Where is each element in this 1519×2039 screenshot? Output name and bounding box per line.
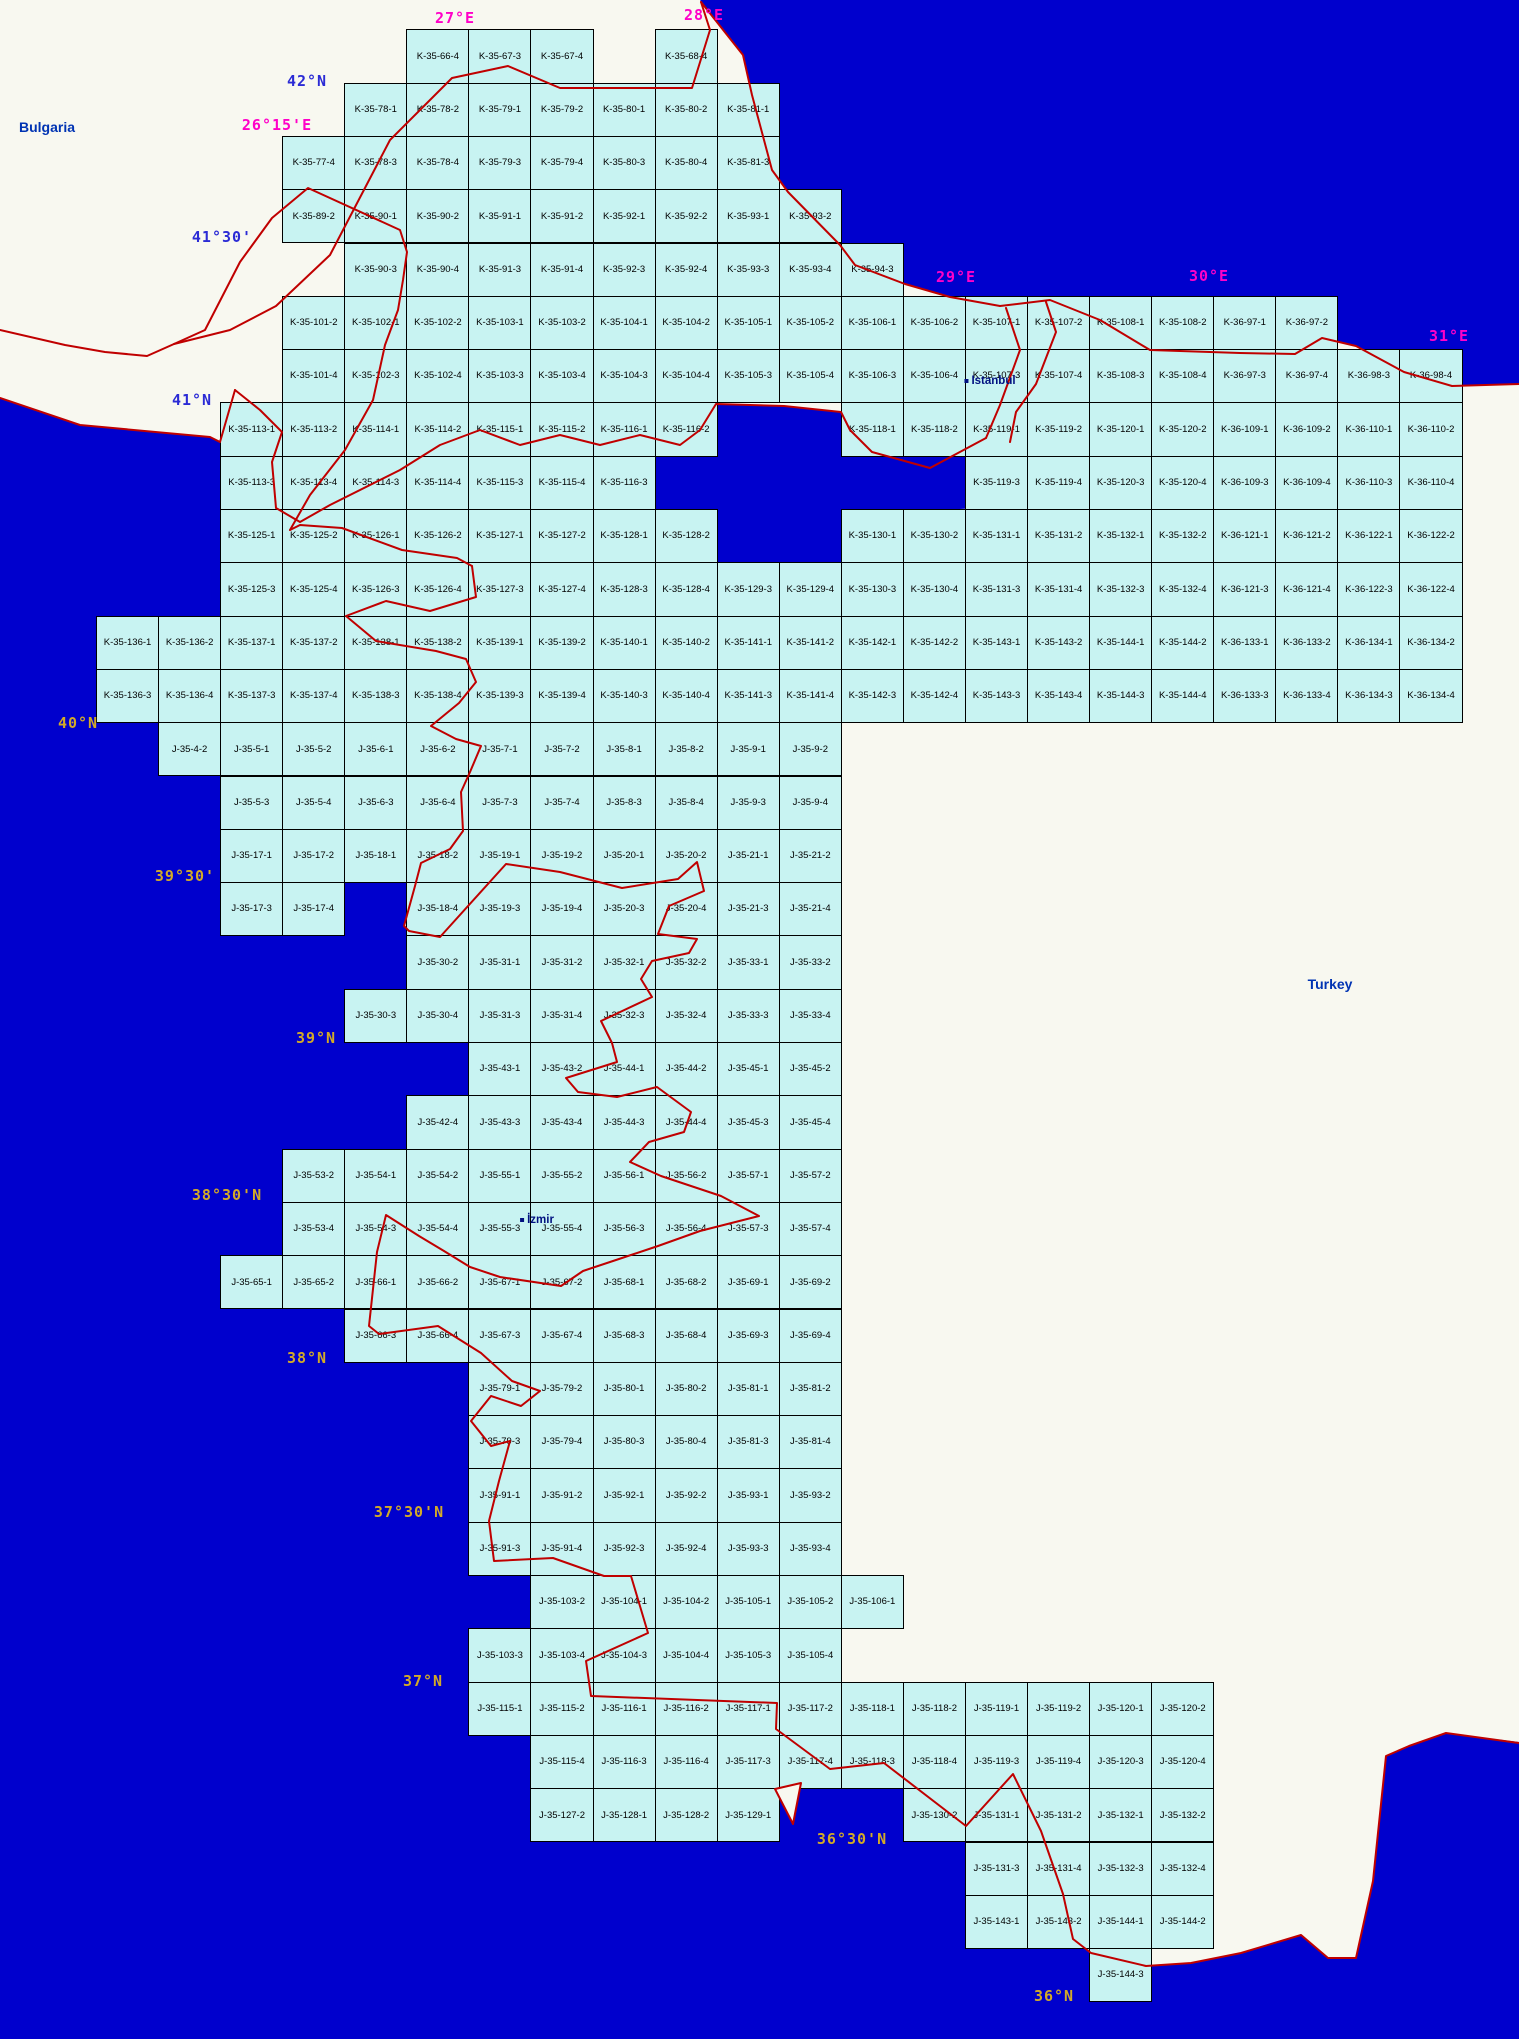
map-sheet-cell-J-35-105-1[interactable]: J-35-105-1 [717,1575,780,1629]
map-sheet-cell-J-35-45-1[interactable]: J-35-45-1 [717,1042,780,1096]
map-sheet-cell-K-35-94-3[interactable]: K-35-94-3 [841,243,904,297]
map-sheet-cell-K-35-81-3[interactable]: K-35-81-3 [717,136,780,190]
map-sheet-cell-K-35-107-4[interactable]: K-35-107-4 [1027,349,1090,403]
map-sheet-cell-J-35-67-4[interactable]: J-35-67-4 [530,1309,593,1363]
map-sheet-cell-J-35-116-3[interactable]: J-35-116-3 [593,1735,656,1789]
map-sheet-cell-K-36-134-1[interactable]: K-36-134-1 [1337,616,1400,670]
map-sheet-cell-J-35-132-4[interactable]: J-35-132-4 [1151,1842,1214,1896]
map-sheet-cell-J-35-33-4[interactable]: J-35-33-4 [779,989,842,1043]
map-sheet-cell-K-36-121-1[interactable]: K-36-121-1 [1213,509,1276,563]
map-sheet-cell-J-35-119-2[interactable]: J-35-119-2 [1027,1682,1090,1736]
map-sheet-cell-K-35-131-2[interactable]: K-35-131-2 [1027,509,1090,563]
map-sheet-cell-J-35-6-2[interactable]: J-35-6-2 [406,722,469,776]
map-sheet-cell-J-35-119-1[interactable]: J-35-119-1 [965,1682,1028,1736]
map-sheet-cell-K-35-103-2[interactable]: K-35-103-2 [530,296,593,350]
map-sheet-cell-K-36-133-3[interactable]: K-36-133-3 [1213,669,1276,723]
map-sheet-cell-K-35-144-3[interactable]: K-35-144-3 [1089,669,1152,723]
map-sheet-cell-J-35-17-4[interactable]: J-35-17-4 [282,882,345,936]
map-sheet-cell-J-35-6-3[interactable]: J-35-6-3 [344,776,407,830]
map-sheet-cell-K-35-68-4[interactable]: K-35-68-4 [655,29,718,83]
map-sheet-cell-J-35-130-2[interactable]: J-35-130-2 [903,1788,966,1842]
map-sheet-cell-K-35-136-1[interactable]: K-35-136-1 [96,616,159,670]
map-sheet-cell-J-35-8-4[interactable]: J-35-8-4 [655,776,718,830]
map-sheet-cell-K-35-92-1[interactable]: K-35-92-1 [593,189,656,243]
map-sheet-cell-J-35-55-2[interactable]: J-35-55-2 [530,1149,593,1203]
map-sheet-cell-J-35-57-4[interactable]: J-35-57-4 [779,1202,842,1256]
map-sheet-cell-J-35-54-4[interactable]: J-35-54-4 [406,1202,469,1256]
map-sheet-cell-J-35-8-3[interactable]: J-35-8-3 [593,776,656,830]
map-sheet-cell-J-35-103-2[interactable]: J-35-103-2 [530,1575,593,1629]
map-sheet-cell-J-35-106-1[interactable]: J-35-106-1 [841,1575,904,1629]
map-sheet-cell-J-35-68-4[interactable]: J-35-68-4 [655,1309,718,1363]
map-sheet-cell-J-35-104-4[interactable]: J-35-104-4 [655,1628,718,1682]
map-sheet-cell-K-35-143-4[interactable]: K-35-143-4 [1027,669,1090,723]
map-sheet-cell-K-35-130-3[interactable]: K-35-130-3 [841,562,904,616]
map-sheet-cell-K-35-138-1[interactable]: K-35-138-1 [344,616,407,670]
map-sheet-cell-J-35-79-3[interactable]: J-35-79-3 [468,1415,531,1469]
map-sheet-cell-K-35-127-4[interactable]: K-35-127-4 [530,562,593,616]
map-sheet-cell-J-35-132-3[interactable]: J-35-132-3 [1089,1842,1152,1896]
map-sheet-cell-K-36-97-2[interactable]: K-36-97-2 [1275,296,1338,350]
map-sheet-cell-J-35-17-2[interactable]: J-35-17-2 [282,829,345,883]
map-sheet-cell-K-35-120-3[interactable]: K-35-120-3 [1089,456,1152,510]
map-sheet-cell-J-35-131-3[interactable]: J-35-131-3 [965,1842,1028,1896]
map-sheet-cell-J-35-31-1[interactable]: J-35-31-1 [468,935,531,989]
map-sheet-cell-J-35-20-1[interactable]: J-35-20-1 [593,829,656,883]
map-sheet-cell-K-35-81-1[interactable]: K-35-81-1 [717,83,780,137]
map-sheet-cell-J-35-19-1[interactable]: J-35-19-1 [468,829,531,883]
map-sheet-cell-K-35-129-3[interactable]: K-35-129-3 [717,562,780,616]
map-sheet-cell-J-35-32-1[interactable]: J-35-32-1 [593,935,656,989]
map-sheet-cell-J-35-92-3[interactable]: J-35-92-3 [593,1522,656,1576]
map-sheet-cell-K-35-108-3[interactable]: K-35-108-3 [1089,349,1152,403]
map-sheet-cell-J-35-67-2[interactable]: J-35-67-2 [530,1255,593,1309]
map-sheet-cell-J-35-116-2[interactable]: J-35-116-2 [655,1682,718,1736]
map-sheet-cell-K-35-139-1[interactable]: K-35-139-1 [468,616,531,670]
map-sheet-cell-K-35-91-4[interactable]: K-35-91-4 [530,243,593,297]
map-sheet-cell-J-35-53-2[interactable]: J-35-53-2 [282,1149,345,1203]
map-sheet-cell-J-35-43-4[interactable]: J-35-43-4 [530,1095,593,1149]
map-sheet-cell-K-35-114-3[interactable]: K-35-114-3 [344,456,407,510]
map-sheet-cell-J-35-21-2[interactable]: J-35-21-2 [779,829,842,883]
map-sheet-cell-J-35-45-2[interactable]: J-35-45-2 [779,1042,842,1096]
map-sheet-cell-K-35-80-4[interactable]: K-35-80-4 [655,136,718,190]
map-sheet-cell-J-35-92-1[interactable]: J-35-92-1 [593,1468,656,1522]
map-sheet-cell-K-35-142-2[interactable]: K-35-142-2 [903,616,966,670]
map-sheet-cell-K-35-106-1[interactable]: K-35-106-1 [841,296,904,350]
map-sheet-cell-K-35-93-3[interactable]: K-35-93-3 [717,243,780,297]
map-sheet-cell-K-35-114-1[interactable]: K-35-114-1 [344,402,407,456]
map-sheet-cell-K-36-110-2[interactable]: K-36-110-2 [1399,402,1462,456]
map-sheet-cell-J-35-18-2[interactable]: J-35-18-2 [406,829,469,883]
map-sheet-cell-K-35-105-4[interactable]: K-35-105-4 [779,349,842,403]
map-sheet-cell-K-35-115-1[interactable]: K-35-115-1 [468,402,531,456]
map-sheet-cell-K-35-106-4[interactable]: K-35-106-4 [903,349,966,403]
map-sheet-cell-J-35-9-2[interactable]: J-35-9-2 [779,722,842,776]
map-sheet-cell-K-35-120-1[interactable]: K-35-120-1 [1089,402,1152,456]
map-sheet-cell-K-35-128-1[interactable]: K-35-128-1 [593,509,656,563]
map-sheet-cell-K-35-136-2[interactable]: K-35-136-2 [158,616,221,670]
map-sheet-cell-J-35-69-1[interactable]: J-35-69-1 [717,1255,780,1309]
map-sheet-cell-K-35-141-3[interactable]: K-35-141-3 [717,669,780,723]
map-sheet-cell-K-35-142-4[interactable]: K-35-142-4 [903,669,966,723]
map-sheet-cell-J-35-104-3[interactable]: J-35-104-3 [593,1628,656,1682]
map-sheet-cell-J-35-103-3[interactable]: J-35-103-3 [468,1628,531,1682]
map-sheet-cell-K-35-126-3[interactable]: K-35-126-3 [344,562,407,616]
map-sheet-cell-K-35-143-3[interactable]: K-35-143-3 [965,669,1028,723]
map-sheet-cell-K-35-125-2[interactable]: K-35-125-2 [282,509,345,563]
map-sheet-cell-K-35-104-4[interactable]: K-35-104-4 [655,349,718,403]
map-sheet-cell-J-35-31-4[interactable]: J-35-31-4 [530,989,593,1043]
map-sheet-cell-J-35-132-2[interactable]: J-35-132-2 [1151,1788,1214,1842]
map-sheet-cell-K-35-142-1[interactable]: K-35-142-1 [841,616,904,670]
map-sheet-cell-K-36-122-3[interactable]: K-36-122-3 [1337,562,1400,616]
map-sheet-cell-J-35-7-3[interactable]: J-35-7-3 [468,776,531,830]
map-sheet-cell-K-36-109-3[interactable]: K-36-109-3 [1213,456,1276,510]
map-sheet-cell-J-35-68-1[interactable]: J-35-68-1 [593,1255,656,1309]
map-sheet-cell-J-35-57-1[interactable]: J-35-57-1 [717,1149,780,1203]
map-sheet-cell-K-36-134-3[interactable]: K-36-134-3 [1337,669,1400,723]
map-sheet-cell-J-35-81-4[interactable]: J-35-81-4 [779,1415,842,1469]
map-sheet-cell-K-35-89-2[interactable]: K-35-89-2 [282,189,345,243]
map-sheet-cell-J-35-93-1[interactable]: J-35-93-1 [717,1468,780,1522]
map-sheet-cell-K-35-105-2[interactable]: K-35-105-2 [779,296,842,350]
map-sheet-cell-K-36-97-1[interactable]: K-36-97-1 [1213,296,1276,350]
map-sheet-cell-K-35-142-3[interactable]: K-35-142-3 [841,669,904,723]
map-sheet-cell-J-35-57-3[interactable]: J-35-57-3 [717,1202,780,1256]
map-sheet-cell-J-35-17-1[interactable]: J-35-17-1 [220,829,283,883]
map-sheet-cell-J-35-9-3[interactable]: J-35-9-3 [717,776,780,830]
map-sheet-cell-J-35-21-3[interactable]: J-35-21-3 [717,882,780,936]
map-sheet-cell-K-35-104-1[interactable]: K-35-104-1 [593,296,656,350]
map-sheet-cell-K-35-107-1[interactable]: K-35-107-1 [965,296,1028,350]
map-sheet-cell-K-35-102-3[interactable]: K-35-102-3 [344,349,407,403]
map-sheet-cell-J-35-116-4[interactable]: J-35-116-4 [655,1735,718,1789]
map-sheet-cell-J-35-19-4[interactable]: J-35-19-4 [530,882,593,936]
map-sheet-cell-K-35-130-2[interactable]: K-35-130-2 [903,509,966,563]
map-sheet-cell-J-35-143-1[interactable]: J-35-143-1 [965,1895,1028,1949]
map-sheet-cell-J-35-54-1[interactable]: J-35-54-1 [344,1149,407,1203]
map-sheet-cell-K-35-92-2[interactable]: K-35-92-2 [655,189,718,243]
map-sheet-cell-J-35-129-1[interactable]: J-35-129-1 [717,1788,780,1842]
map-sheet-cell-K-35-101-2[interactable]: K-35-101-2 [282,296,345,350]
map-sheet-cell-K-35-116-1[interactable]: K-35-116-1 [593,402,656,456]
map-sheet-cell-J-35-65-1[interactable]: J-35-65-1 [220,1255,283,1309]
map-sheet-cell-J-35-117-3[interactable]: J-35-117-3 [717,1735,780,1789]
map-sheet-cell-K-35-130-1[interactable]: K-35-130-1 [841,509,904,563]
map-sheet-cell-J-35-92-2[interactable]: J-35-92-2 [655,1468,718,1522]
map-sheet-cell-K-35-126-4[interactable]: K-35-126-4 [406,562,469,616]
map-sheet-cell-J-35-91-4[interactable]: J-35-91-4 [530,1522,593,1576]
map-sheet-cell-K-36-110-3[interactable]: K-36-110-3 [1337,456,1400,510]
map-sheet-cell-K-36-109-2[interactable]: K-36-109-2 [1275,402,1338,456]
map-sheet-cell-K-35-115-2[interactable]: K-35-115-2 [530,402,593,456]
map-sheet-cell-K-35-137-4[interactable]: K-35-137-4 [282,669,345,723]
map-sheet-cell-J-35-21-1[interactable]: J-35-21-1 [717,829,780,883]
map-sheet-cell-K-35-138-4[interactable]: K-35-138-4 [406,669,469,723]
map-sheet-cell-J-35-56-1[interactable]: J-35-56-1 [593,1149,656,1203]
map-sheet-cell-K-35-92-4[interactable]: K-35-92-4 [655,243,718,297]
map-sheet-cell-J-35-45-3[interactable]: J-35-45-3 [717,1095,780,1149]
map-sheet-cell-K-35-132-3[interactable]: K-35-132-3 [1089,562,1152,616]
map-sheet-cell-J-35-92-4[interactable]: J-35-92-4 [655,1522,718,1576]
map-sheet-cell-J-35-143-2[interactable]: J-35-143-2 [1027,1895,1090,1949]
map-sheet-cell-K-35-103-4[interactable]: K-35-103-4 [530,349,593,403]
map-sheet-cell-K-35-101-4[interactable]: K-35-101-4 [282,349,345,403]
map-sheet-cell-J-35-117-1[interactable]: J-35-117-1 [717,1682,780,1736]
map-sheet-cell-J-35-144-1[interactable]: J-35-144-1 [1089,1895,1152,1949]
map-sheet-cell-J-35-80-3[interactable]: J-35-80-3 [593,1415,656,1469]
map-sheet-cell-J-35-43-2[interactable]: J-35-43-2 [530,1042,593,1096]
map-sheet-cell-J-35-55-4[interactable]: J-35-55-4 [530,1202,593,1256]
map-sheet-cell-K-35-113-3[interactable]: K-35-113-3 [220,456,283,510]
map-sheet-cell-K-35-127-3[interactable]: K-35-127-3 [468,562,531,616]
map-sheet-cell-J-35-117-4[interactable]: J-35-117-4 [779,1735,842,1789]
map-sheet-cell-J-35-31-2[interactable]: J-35-31-2 [530,935,593,989]
map-sheet-cell-J-35-66-4[interactable]: J-35-66-4 [406,1309,469,1363]
map-sheet-cell-J-35-79-2[interactable]: J-35-79-2 [530,1362,593,1416]
map-sheet-cell-K-35-106-3[interactable]: K-35-106-3 [841,349,904,403]
map-sheet-cell-J-35-103-4[interactable]: J-35-103-4 [530,1628,593,1682]
map-sheet-cell-K-35-102-2[interactable]: K-35-102-2 [406,296,469,350]
map-sheet-cell-J-35-80-1[interactable]: J-35-80-1 [593,1362,656,1416]
map-sheet-cell-J-35-115-2[interactable]: J-35-115-2 [530,1682,593,1736]
map-sheet-cell-J-35-80-2[interactable]: J-35-80-2 [655,1362,718,1416]
map-sheet-cell-K-35-127-1[interactable]: K-35-127-1 [468,509,531,563]
map-sheet-cell-K-35-128-3[interactable]: K-35-128-3 [593,562,656,616]
map-sheet-cell-J-35-81-3[interactable]: J-35-81-3 [717,1415,780,1469]
map-sheet-cell-J-35-9-1[interactable]: J-35-9-1 [717,722,780,776]
map-sheet-cell-J-35-56-4[interactable]: J-35-56-4 [655,1202,718,1256]
map-sheet-cell-J-35-104-2[interactable]: J-35-104-2 [655,1575,718,1629]
map-sheet-cell-K-35-141-2[interactable]: K-35-141-2 [779,616,842,670]
map-sheet-cell-K-35-136-3[interactable]: K-35-136-3 [96,669,159,723]
map-sheet-cell-K-36-133-4[interactable]: K-36-133-4 [1275,669,1338,723]
map-sheet-cell-J-35-30-3[interactable]: J-35-30-3 [344,989,407,1043]
map-sheet-cell-J-35-5-2[interactable]: J-35-5-2 [282,722,345,776]
map-sheet-cell-K-35-132-2[interactable]: K-35-132-2 [1151,509,1214,563]
map-sheet-cell-K-35-93-4[interactable]: K-35-93-4 [779,243,842,297]
map-sheet-cell-J-35-45-4[interactable]: J-35-45-4 [779,1095,842,1149]
map-sheet-cell-K-35-129-4[interactable]: K-35-129-4 [779,562,842,616]
map-sheet-cell-K-35-79-4[interactable]: K-35-79-4 [530,136,593,190]
map-sheet-cell-J-35-42-4[interactable]: J-35-42-4 [406,1095,469,1149]
map-sheet-cell-K-35-128-4[interactable]: K-35-128-4 [655,562,718,616]
map-sheet-cell-K-35-108-1[interactable]: K-35-108-1 [1089,296,1152,350]
map-sheet-cell-J-35-8-2[interactable]: J-35-8-2 [655,722,718,776]
map-sheet-cell-J-35-118-4[interactable]: J-35-118-4 [903,1735,966,1789]
map-sheet-cell-J-35-53-4[interactable]: J-35-53-4 [282,1202,345,1256]
map-sheet-cell-K-35-140-2[interactable]: K-35-140-2 [655,616,718,670]
map-sheet-cell-K-36-109-1[interactable]: K-36-109-1 [1213,402,1276,456]
map-sheet-cell-K-35-116-3[interactable]: K-35-116-3 [593,456,656,510]
map-sheet-cell-J-35-69-3[interactable]: J-35-69-3 [717,1309,780,1363]
map-sheet-cell-J-35-132-1[interactable]: J-35-132-1 [1089,1788,1152,1842]
map-sheet-cell-J-35-32-2[interactable]: J-35-32-2 [655,935,718,989]
map-sheet-cell-J-35-119-4[interactable]: J-35-119-4 [1027,1735,1090,1789]
map-sheet-cell-K-35-78-3[interactable]: K-35-78-3 [344,136,407,190]
map-sheet-cell-K-35-131-4[interactable]: K-35-131-4 [1027,562,1090,616]
map-sheet-cell-K-35-78-2[interactable]: K-35-78-2 [406,83,469,137]
map-sheet-cell-J-35-105-3[interactable]: J-35-105-3 [717,1628,780,1682]
map-sheet-cell-K-35-126-1[interactable]: K-35-126-1 [344,509,407,563]
map-sheet-cell-J-35-31-3[interactable]: J-35-31-3 [468,989,531,1043]
map-sheet-cell-J-35-5-4[interactable]: J-35-5-4 [282,776,345,830]
map-sheet-cell-J-35-120-3[interactable]: J-35-120-3 [1089,1735,1152,1789]
map-sheet-cell-J-35-118-2[interactable]: J-35-118-2 [903,1682,966,1736]
map-sheet-cell-K-35-137-3[interactable]: K-35-137-3 [220,669,283,723]
map-sheet-cell-K-35-103-3[interactable]: K-35-103-3 [468,349,531,403]
map-sheet-cell-K-35-67-4[interactable]: K-35-67-4 [530,29,593,83]
map-sheet-cell-J-35-93-3[interactable]: J-35-93-3 [717,1522,780,1576]
map-sheet-cell-K-35-104-3[interactable]: K-35-104-3 [593,349,656,403]
map-sheet-cell-J-35-79-4[interactable]: J-35-79-4 [530,1415,593,1469]
map-sheet-cell-K-35-144-4[interactable]: K-35-144-4 [1151,669,1214,723]
map-sheet-cell-J-35-69-2[interactable]: J-35-69-2 [779,1255,842,1309]
map-sheet-cell-K-35-115-4[interactable]: K-35-115-4 [530,456,593,510]
map-sheet-cell-K-35-106-2[interactable]: K-35-106-2 [903,296,966,350]
map-sheet-cell-J-35-127-2[interactable]: J-35-127-2 [530,1788,593,1842]
map-sheet-cell-K-35-139-3[interactable]: K-35-139-3 [468,669,531,723]
map-sheet-cell-K-35-115-3[interactable]: K-35-115-3 [468,456,531,510]
map-sheet-cell-J-35-33-2[interactable]: J-35-33-2 [779,935,842,989]
map-sheet-cell-K-35-144-2[interactable]: K-35-144-2 [1151,616,1214,670]
map-sheet-cell-J-35-44-1[interactable]: J-35-44-1 [593,1042,656,1096]
map-sheet-cell-K-35-126-2[interactable]: K-35-126-2 [406,509,469,563]
map-sheet-cell-J-35-79-1[interactable]: J-35-79-1 [468,1362,531,1416]
map-sheet-cell-J-35-120-1[interactable]: J-35-120-1 [1089,1682,1152,1736]
map-sheet-cell-K-36-122-1[interactable]: K-36-122-1 [1337,509,1400,563]
map-sheet-cell-K-35-116-2[interactable]: K-35-116-2 [655,402,718,456]
map-sheet-cell-J-35-93-4[interactable]: J-35-93-4 [779,1522,842,1576]
map-sheet-cell-J-35-115-1[interactable]: J-35-115-1 [468,1682,531,1736]
map-sheet-cell-J-35-91-2[interactable]: J-35-91-2 [530,1468,593,1522]
map-sheet-cell-J-35-119-3[interactable]: J-35-119-3 [965,1735,1028,1789]
map-sheet-cell-K-36-122-4[interactable]: K-36-122-4 [1399,562,1462,616]
map-sheet-cell-J-35-68-3[interactable]: J-35-68-3 [593,1309,656,1363]
map-sheet-cell-K-35-91-2[interactable]: K-35-91-2 [530,189,593,243]
map-sheet-cell-K-35-114-4[interactable]: K-35-114-4 [406,456,469,510]
map-sheet-cell-J-35-128-1[interactable]: J-35-128-1 [593,1788,656,1842]
map-sheet-cell-J-35-54-3[interactable]: J-35-54-3 [344,1202,407,1256]
map-sheet-cell-K-35-105-3[interactable]: K-35-105-3 [717,349,780,403]
map-sheet-cell-K-35-90-2[interactable]: K-35-90-2 [406,189,469,243]
map-sheet-cell-J-35-144-3[interactable]: J-35-144-3 [1089,1948,1152,2002]
map-sheet-cell-K-35-79-2[interactable]: K-35-79-2 [530,83,593,137]
map-sheet-cell-J-35-44-3[interactable]: J-35-44-3 [593,1095,656,1149]
map-sheet-cell-K-35-127-2[interactable]: K-35-127-2 [530,509,593,563]
map-sheet-cell-K-35-103-1[interactable]: K-35-103-1 [468,296,531,350]
map-sheet-cell-K-35-137-2[interactable]: K-35-137-2 [282,616,345,670]
map-sheet-cell-J-35-43-3[interactable]: J-35-43-3 [468,1095,531,1149]
map-sheet-cell-J-35-69-4[interactable]: J-35-69-4 [779,1309,842,1363]
map-sheet-cell-K-35-131-3[interactable]: K-35-131-3 [965,562,1028,616]
map-sheet-cell-K-35-80-2[interactable]: K-35-80-2 [655,83,718,137]
map-sheet-cell-J-35-120-4[interactable]: J-35-120-4 [1151,1735,1214,1789]
map-sheet-cell-K-35-91-3[interactable]: K-35-91-3 [468,243,531,297]
map-sheet-cell-J-35-115-4[interactable]: J-35-115-4 [530,1735,593,1789]
map-sheet-cell-K-35-113-4[interactable]: K-35-113-4 [282,456,345,510]
map-sheet-cell-J-35-81-2[interactable]: J-35-81-2 [779,1362,842,1416]
map-sheet-cell-J-35-33-1[interactable]: J-35-33-1 [717,935,780,989]
map-sheet-cell-J-35-4-2[interactable]: J-35-4-2 [158,722,221,776]
map-sheet-cell-K-36-110-4[interactable]: K-36-110-4 [1399,456,1462,510]
map-sheet-cell-J-35-104-1[interactable]: J-35-104-1 [593,1575,656,1629]
map-sheet-cell-K-35-78-4[interactable]: K-35-78-4 [406,136,469,190]
map-sheet-cell-K-35-93-1[interactable]: K-35-93-1 [717,189,780,243]
map-sheet-cell-J-35-118-1[interactable]: J-35-118-1 [841,1682,904,1736]
map-sheet-cell-K-35-132-4[interactable]: K-35-132-4 [1151,562,1214,616]
map-sheet-cell-K-35-138-3[interactable]: K-35-138-3 [344,669,407,723]
map-sheet-cell-J-35-7-4[interactable]: J-35-7-4 [530,776,593,830]
map-sheet-cell-K-35-136-4[interactable]: K-35-136-4 [158,669,221,723]
map-sheet-cell-K-36-133-2[interactable]: K-36-133-2 [1275,616,1338,670]
map-sheet-cell-K-35-93-2[interactable]: K-35-93-2 [779,189,842,243]
map-sheet-cell-K-35-66-4[interactable]: K-35-66-4 [406,29,469,83]
map-sheet-cell-J-35-91-1[interactable]: J-35-91-1 [468,1468,531,1522]
map-sheet-cell-J-35-18-4[interactable]: J-35-18-4 [406,882,469,936]
map-sheet-cell-K-35-138-2[interactable]: K-35-138-2 [406,616,469,670]
map-sheet-cell-K-35-119-2[interactable]: K-35-119-2 [1027,402,1090,456]
map-sheet-cell-K-35-141-4[interactable]: K-35-141-4 [779,669,842,723]
map-sheet-cell-K-35-125-1[interactable]: K-35-125-1 [220,509,283,563]
map-sheet-cell-K-35-128-2[interactable]: K-35-128-2 [655,509,718,563]
map-sheet-cell-K-35-140-3[interactable]: K-35-140-3 [593,669,656,723]
map-sheet-cell-J-35-54-2[interactable]: J-35-54-2 [406,1149,469,1203]
map-sheet-cell-K-35-113-2[interactable]: K-35-113-2 [282,402,345,456]
map-sheet-cell-J-35-19-2[interactable]: J-35-19-2 [530,829,593,883]
map-sheet-cell-K-35-130-4[interactable]: K-35-130-4 [903,562,966,616]
map-sheet-cell-J-35-131-4[interactable]: J-35-131-4 [1027,1842,1090,1896]
map-sheet-cell-J-35-57-2[interactable]: J-35-57-2 [779,1149,842,1203]
map-sheet-cell-J-35-21-4[interactable]: J-35-21-4 [779,882,842,936]
map-sheet-cell-J-35-17-3[interactable]: J-35-17-3 [220,882,283,936]
map-sheet-cell-K-35-102-1[interactable]: K-35-102-1 [344,296,407,350]
map-sheet-cell-J-35-43-1[interactable]: J-35-43-1 [468,1042,531,1096]
map-sheet-cell-K-35-119-4[interactable]: K-35-119-4 [1027,456,1090,510]
map-sheet-cell-J-35-91-3[interactable]: J-35-91-3 [468,1522,531,1576]
map-sheet-cell-K-35-107-2[interactable]: K-35-107-2 [1027,296,1090,350]
map-sheet-cell-J-35-117-2[interactable]: J-35-117-2 [779,1682,842,1736]
map-sheet-cell-J-35-32-3[interactable]: J-35-32-3 [593,989,656,1043]
map-sheet-cell-J-35-56-2[interactable]: J-35-56-2 [655,1149,718,1203]
map-sheet-cell-K-35-67-3[interactable]: K-35-67-3 [468,29,531,83]
map-sheet-cell-J-35-5-3[interactable]: J-35-5-3 [220,776,283,830]
map-sheet-cell-K-35-90-4[interactable]: K-35-90-4 [406,243,469,297]
map-sheet-cell-K-36-122-2[interactable]: K-36-122-2 [1399,509,1462,563]
map-sheet-cell-J-35-144-2[interactable]: J-35-144-2 [1151,1895,1214,1949]
map-sheet-cell-J-35-66-1[interactable]: J-35-66-1 [344,1255,407,1309]
map-sheet-cell-J-35-105-2[interactable]: J-35-105-2 [779,1575,842,1629]
map-sheet-cell-J-35-30-4[interactable]: J-35-30-4 [406,989,469,1043]
map-sheet-cell-J-35-105-4[interactable]: J-35-105-4 [779,1628,842,1682]
map-sheet-cell-J-35-20-2[interactable]: J-35-20-2 [655,829,718,883]
map-sheet-cell-J-35-9-4[interactable]: J-35-9-4 [779,776,842,830]
map-sheet-cell-K-36-97-4[interactable]: K-36-97-4 [1275,349,1338,403]
map-sheet-cell-K-35-140-1[interactable]: K-35-140-1 [593,616,656,670]
map-sheet-cell-K-35-125-3[interactable]: K-35-125-3 [220,562,283,616]
map-sheet-cell-J-35-7-1[interactable]: J-35-7-1 [468,722,531,776]
map-sheet-cell-K-35-140-4[interactable]: K-35-140-4 [655,669,718,723]
map-sheet-cell-K-36-134-2[interactable]: K-36-134-2 [1399,616,1462,670]
map-sheet-cell-J-35-6-1[interactable]: J-35-6-1 [344,722,407,776]
map-sheet-cell-J-35-55-3[interactable]: J-35-55-3 [468,1202,531,1256]
map-sheet-cell-K-35-120-2[interactable]: K-35-120-2 [1151,402,1214,456]
map-sheet-cell-K-36-121-3[interactable]: K-36-121-3 [1213,562,1276,616]
map-sheet-cell-J-35-44-4[interactable]: J-35-44-4 [655,1095,718,1149]
map-sheet-cell-J-35-30-2[interactable]: J-35-30-2 [406,935,469,989]
map-sheet-cell-K-35-102-4[interactable]: K-35-102-4 [406,349,469,403]
